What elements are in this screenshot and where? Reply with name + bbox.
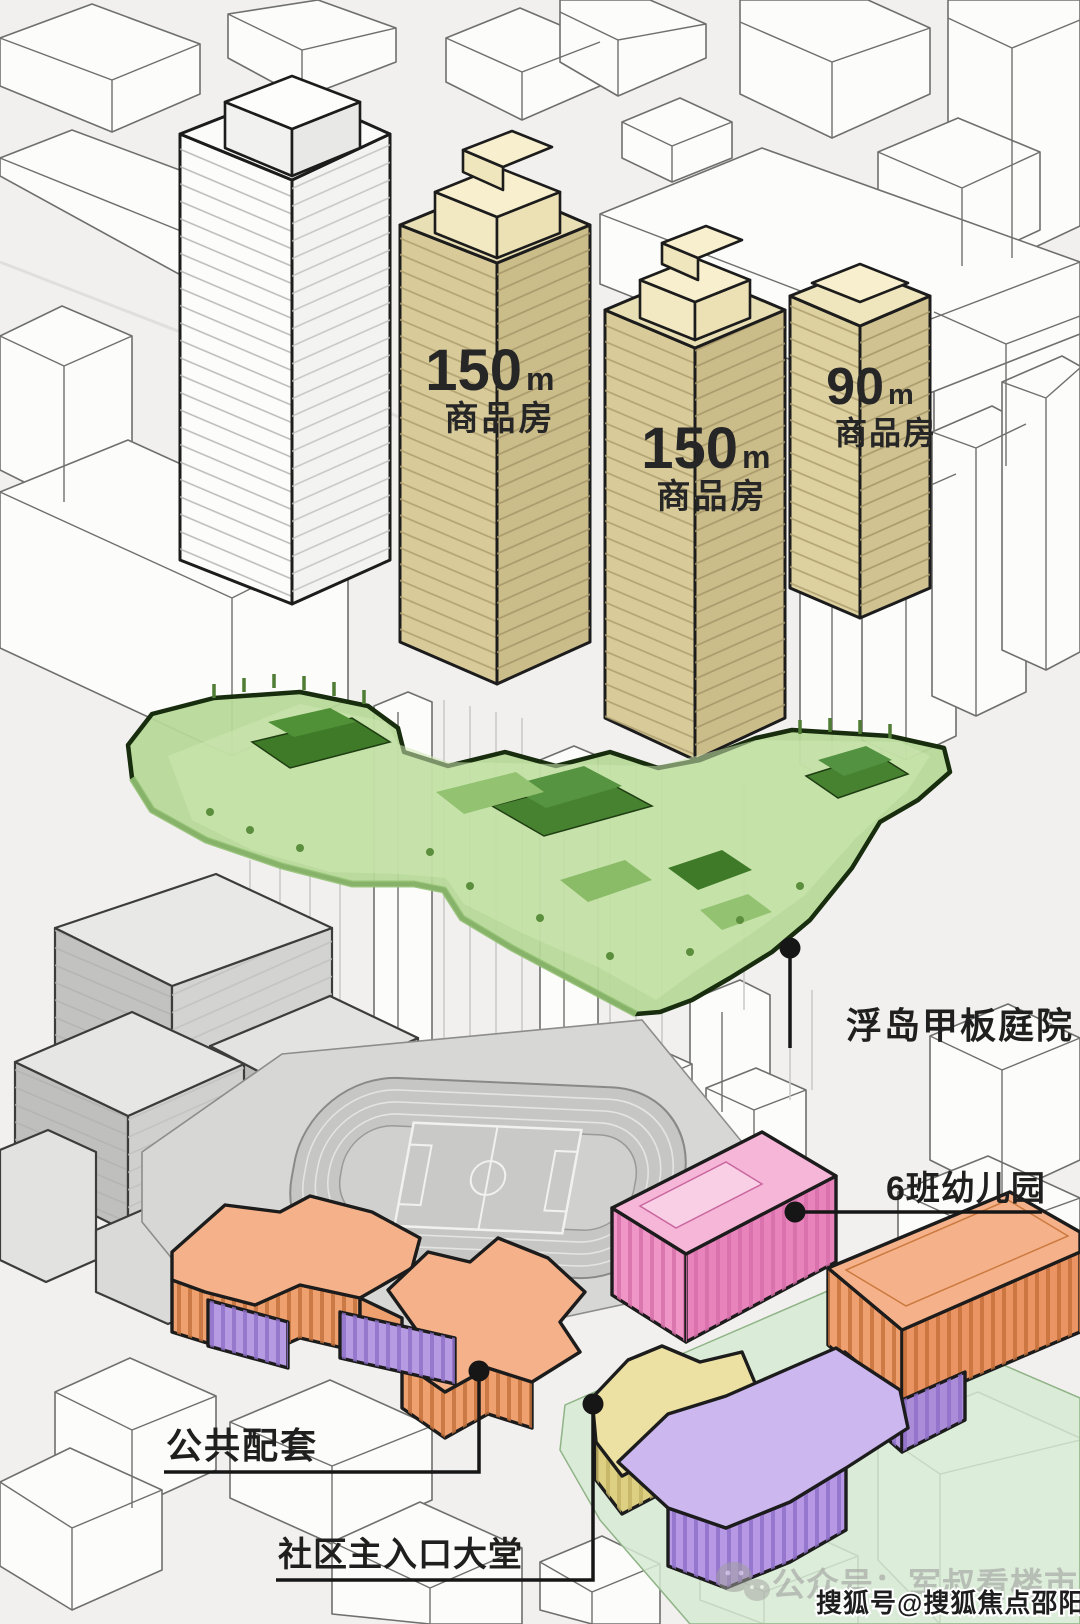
tower-b-use: 商品房 <box>657 478 768 516</box>
soccer-field <box>395 1123 582 1234</box>
site-plan-svg: 150 m 商品房 150 m 商品房 90 m 商品房 <box>0 0 1080 1624</box>
tower-a-unit: m <box>526 361 554 397</box>
tower-b-unit: m <box>742 439 770 475</box>
tower-150-a: 150 m 商品房 <box>400 131 590 684</box>
callout-kindergarten-label: 6班幼儿园 <box>886 1170 1046 1208</box>
callout-deck: 浮岛甲板庭院 <box>780 938 1075 1049</box>
callout-lobby-label: 社区主入口大堂 <box>278 1536 523 1574</box>
tower-90: 90 m 商品房 <box>790 264 937 618</box>
tower-150-b: 150 m 商品房 <box>605 226 785 760</box>
axonometric-site-diagram: 150 m 商品房 150 m 商品房 90 m 商品房 <box>0 0 1080 1624</box>
tower-c-use: 商品房 <box>835 415 937 451</box>
watermark-sohu: 搜狐号@搜狐焦点邵阳站 <box>816 1588 1080 1618</box>
tower-c-unit: m <box>888 379 914 411</box>
callout-public-label: 公共配套 <box>166 1425 318 1466</box>
tower-c-height: 90 <box>826 358 884 416</box>
tower-a-use: 商品房 <box>445 400 556 438</box>
tower-white <box>180 76 390 604</box>
tower-b-height: 150 <box>641 416 738 481</box>
tower-a-height: 150 <box>425 338 522 403</box>
callout-deck-label: 浮岛甲板庭院 <box>846 1005 1074 1046</box>
